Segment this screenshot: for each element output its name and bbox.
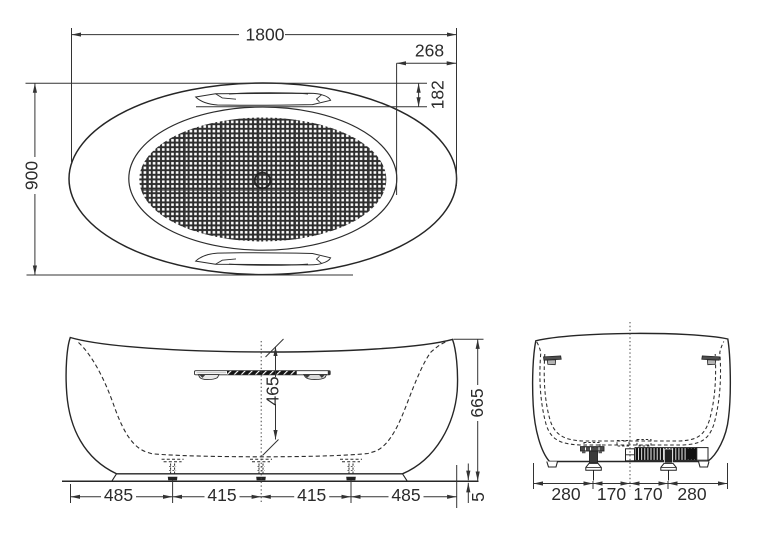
svg-text:170: 170 [633,484,662,504]
svg-text:485: 485 [104,485,133,505]
svg-text:415: 415 [207,485,236,505]
svg-text:170: 170 [597,484,626,504]
svg-text:182: 182 [428,80,448,109]
svg-text:268: 268 [415,41,444,61]
svg-text:900: 900 [22,161,42,190]
svg-text:485: 485 [391,485,420,505]
svg-text:280: 280 [551,484,580,504]
svg-text:465: 465 [262,376,282,405]
svg-text:5: 5 [468,492,488,502]
svg-text:665: 665 [467,388,487,417]
svg-text:280: 280 [677,484,706,504]
svg-text:1800: 1800 [246,25,285,45]
svg-text:415: 415 [297,485,326,505]
